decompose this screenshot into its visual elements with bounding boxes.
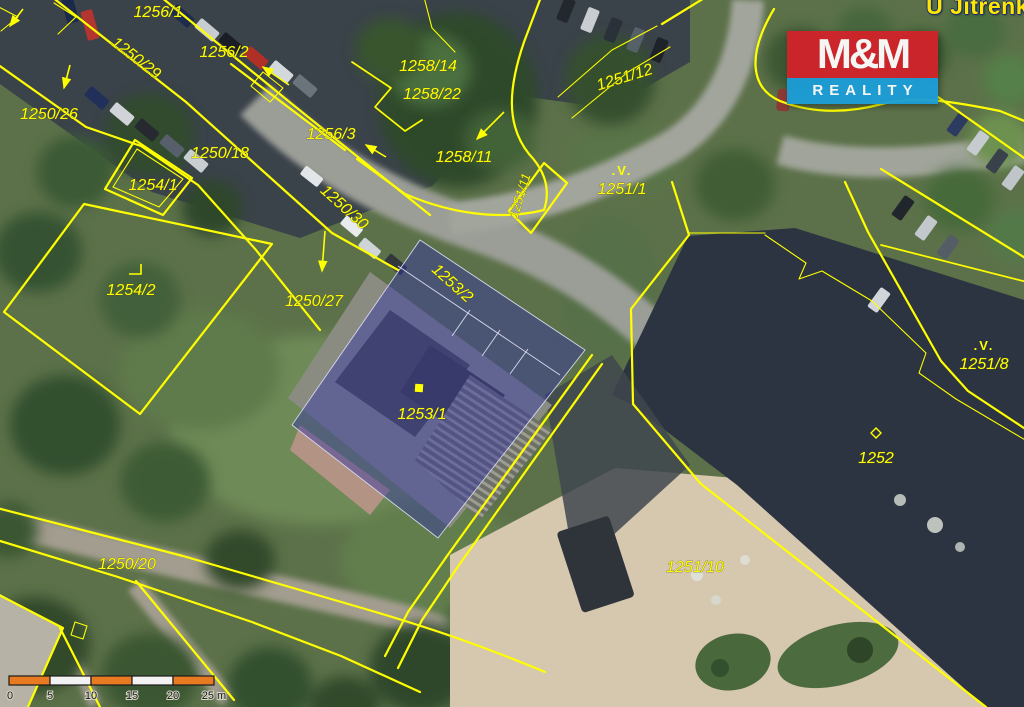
parcel-label-1253-1: 1253/1 [398,406,447,423]
scale-tick-0: 0 [7,690,13,702]
logo-bottom-text: REALITY [787,78,938,104]
aerial-photo-layer: .V. .V. 1256/1 1250/29 1256/2 1250/26 12… [0,0,1024,707]
mm-reality-logo: M&M REALITY [787,31,938,104]
parcel-label-1250-18: 1250/18 [191,145,249,162]
logo-top-text: M&M [787,31,938,78]
parcel-point-marker [415,384,424,393]
parcel-label-1252: 1252 [858,450,894,467]
parcel-label-1254-1: 1254/1 [129,177,178,194]
parcel-label-1256-2: 1256/2 [200,44,249,61]
parcel-label-1250-27: 1250/27 [285,293,344,310]
parcel-label-1254-2: 1254/2 [107,282,156,299]
parcel-label-1251-10: 1251/10 [666,559,724,576]
parcel-label-1258-11: 1258/11 [436,149,493,166]
parcel-label-1256-1: 1256/1 [134,4,183,21]
scale-tick-10: 10 [85,690,97,702]
parcel-label-1250-20: 1250/20 [98,556,156,573]
scale-tick-20: 20 [167,690,179,702]
parcel-label-1258-14: 1258/14 [399,58,457,75]
scale-tick-5: 5 [47,690,53,702]
parcel-label-1250-26: 1250/26 [20,106,78,123]
street-name-label: U Jitřenk [926,0,1024,20]
parcel-label-1251-8: 1251/8 [960,356,1009,373]
parcel-label-1256-3: 1256/3 [307,126,356,143]
land-use-symbol: .V. [974,338,995,353]
scale-tick-15: 15 [126,690,138,702]
scale-tick-25m: 25 m [202,690,226,702]
land-use-symbol: .V. [612,163,633,178]
parcel-label-1251-1: 1251/1 [598,181,647,198]
parcel-label-1258-22: 1258/22 [403,86,461,103]
cadastral-map: .V. .V. 1256/1 1250/29 1256/2 1250/26 12… [0,0,1024,707]
